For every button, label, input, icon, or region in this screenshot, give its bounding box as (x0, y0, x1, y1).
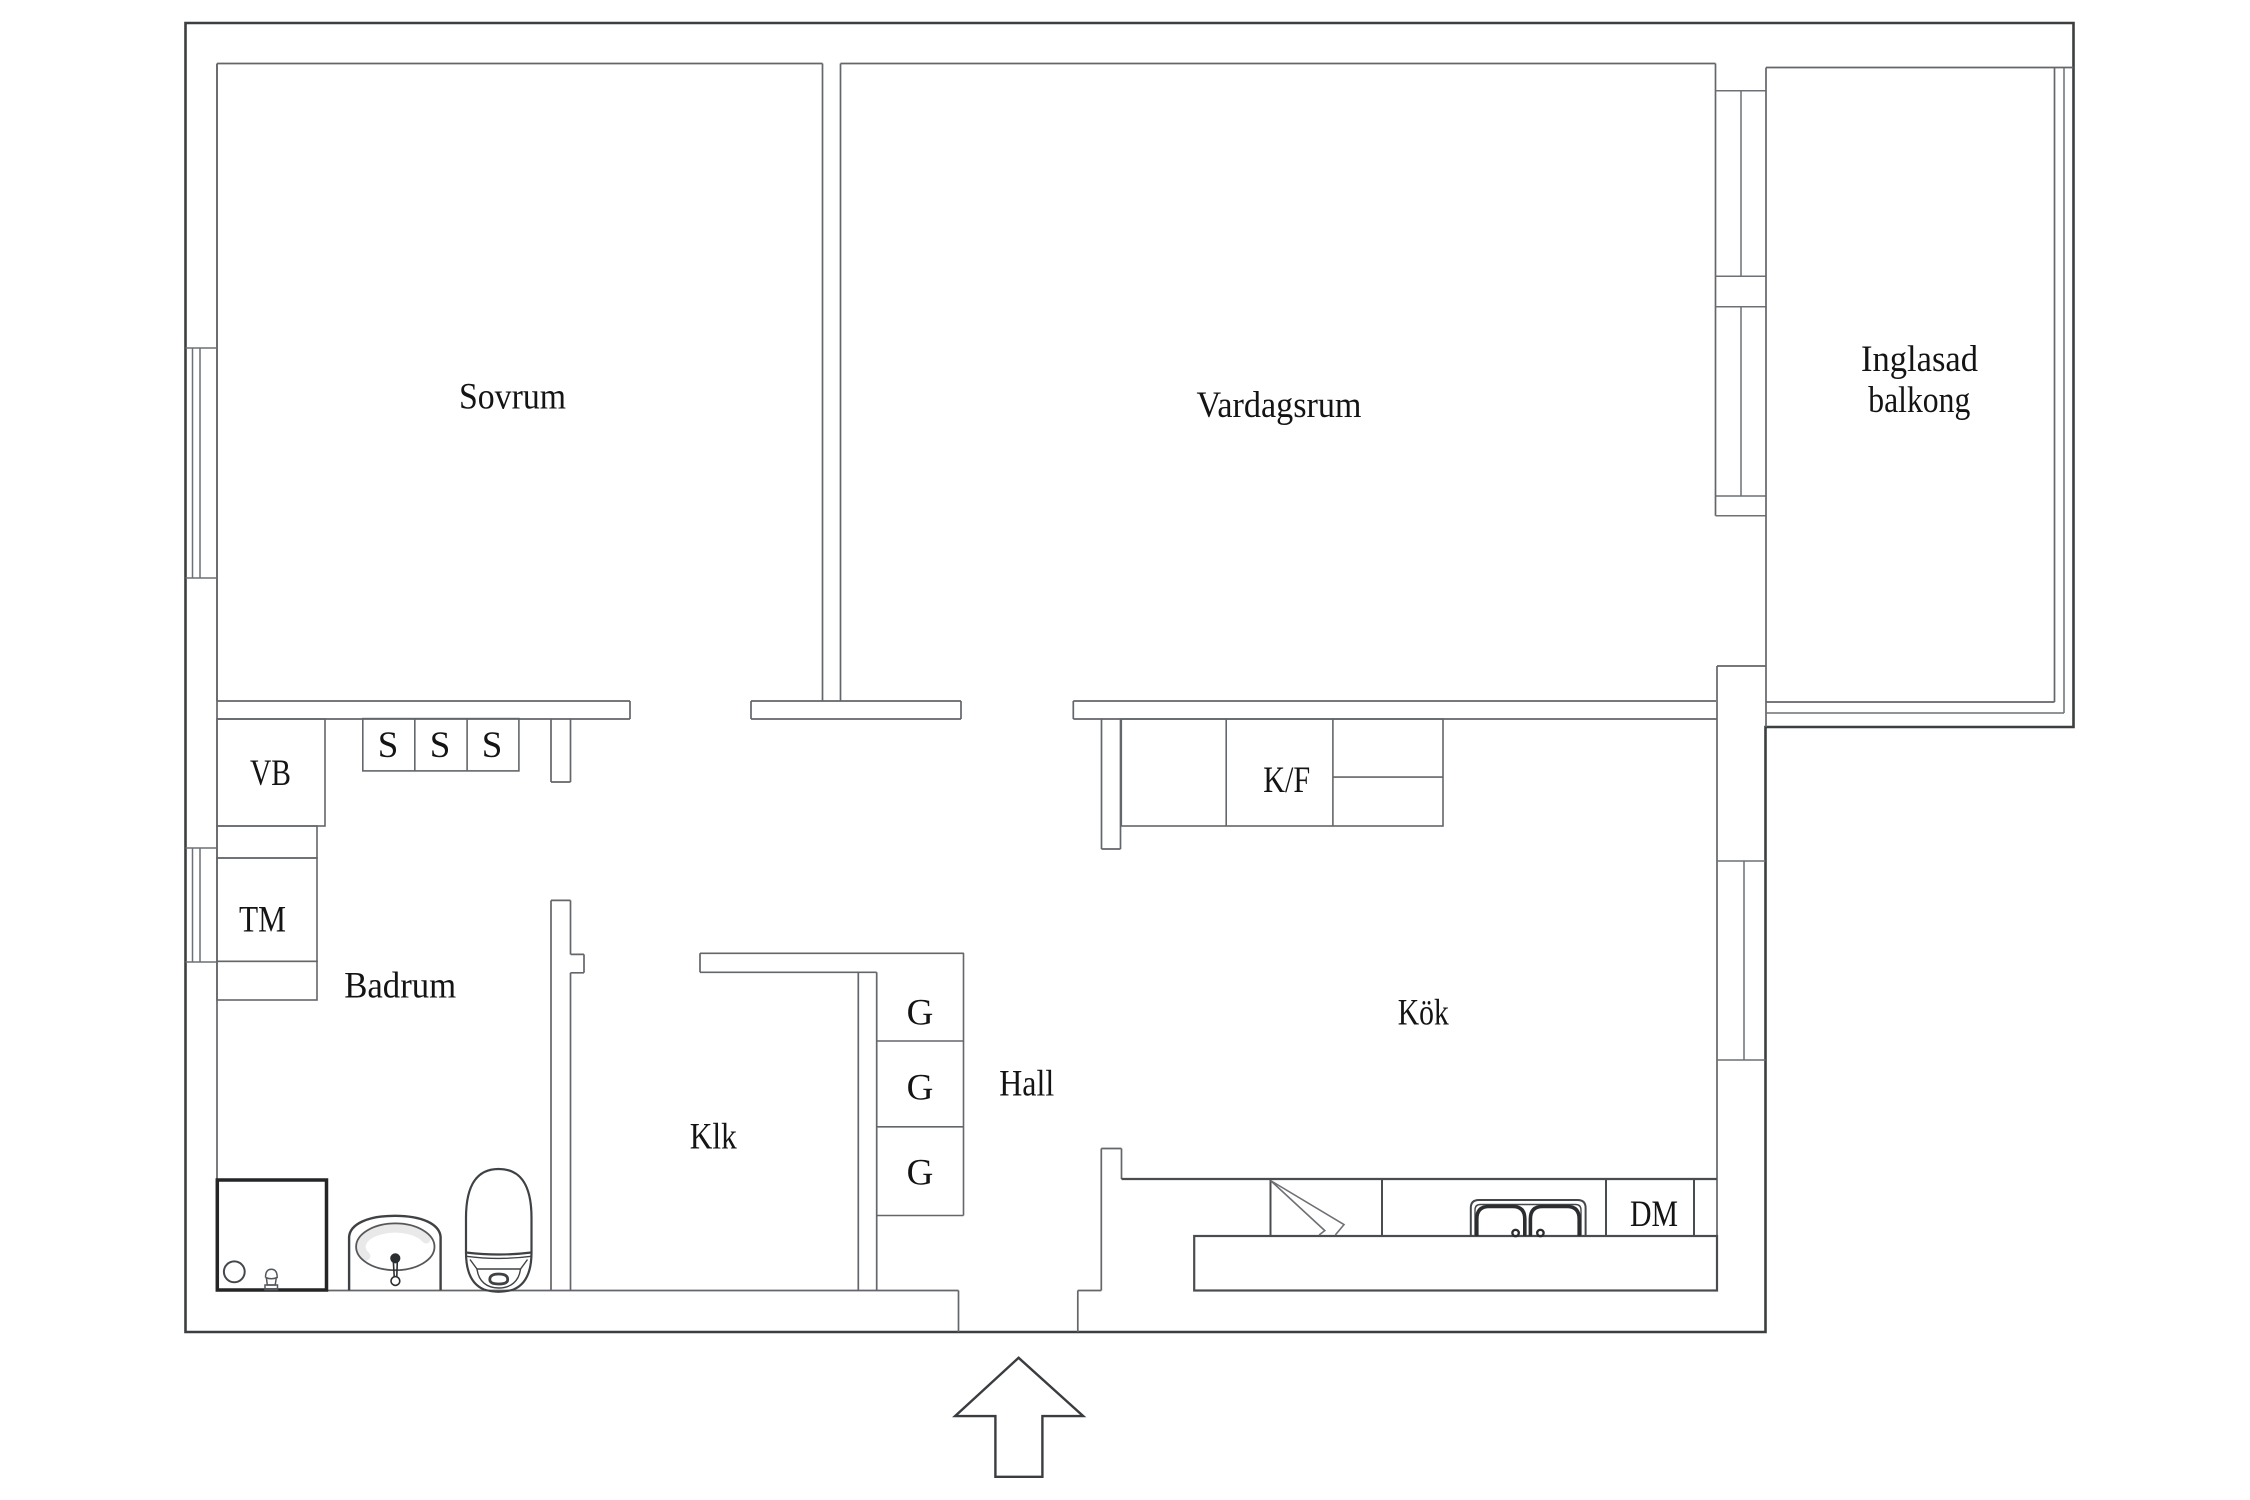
svg-text:S: S (430, 725, 451, 766)
svg-text:G: G (907, 1153, 934, 1194)
svg-text:Hall: Hall (999, 1064, 1054, 1105)
svg-text:Kök: Kök (1398, 992, 1449, 1033)
svg-text:Klk: Klk (690, 1116, 737, 1157)
svg-text:S: S (482, 725, 503, 766)
svg-text:VB: VB (250, 753, 291, 794)
svg-text:TM: TM (239, 900, 286, 941)
svg-text:DM: DM (1630, 1194, 1678, 1235)
svg-text:S: S (378, 725, 399, 766)
svg-text:Badrum: Badrum (344, 965, 456, 1006)
svg-text:G: G (907, 993, 934, 1034)
svg-text:Vardagsrum: Vardagsrum (1197, 385, 1362, 426)
svg-text:balkong: balkong (1868, 380, 1970, 421)
svg-text:K/F: K/F (1263, 760, 1310, 801)
svg-text:G: G (907, 1067, 934, 1108)
svg-text:Sovrum: Sovrum (459, 377, 566, 418)
svg-text:Inglasad: Inglasad (1861, 339, 1978, 380)
